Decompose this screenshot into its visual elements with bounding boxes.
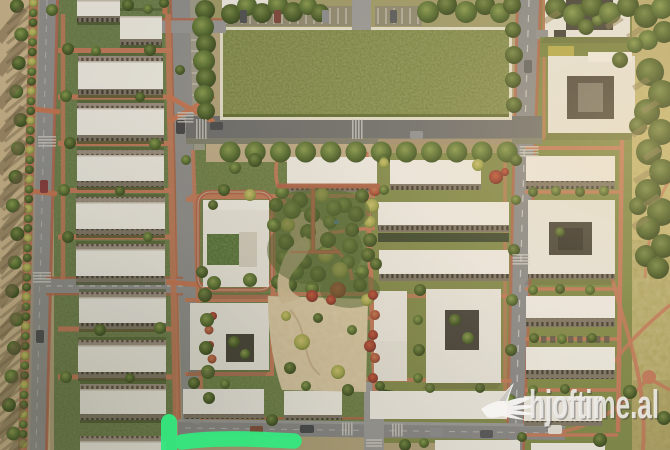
- svg-text:hjoftime.al: hjoftime.al: [529, 383, 659, 427]
